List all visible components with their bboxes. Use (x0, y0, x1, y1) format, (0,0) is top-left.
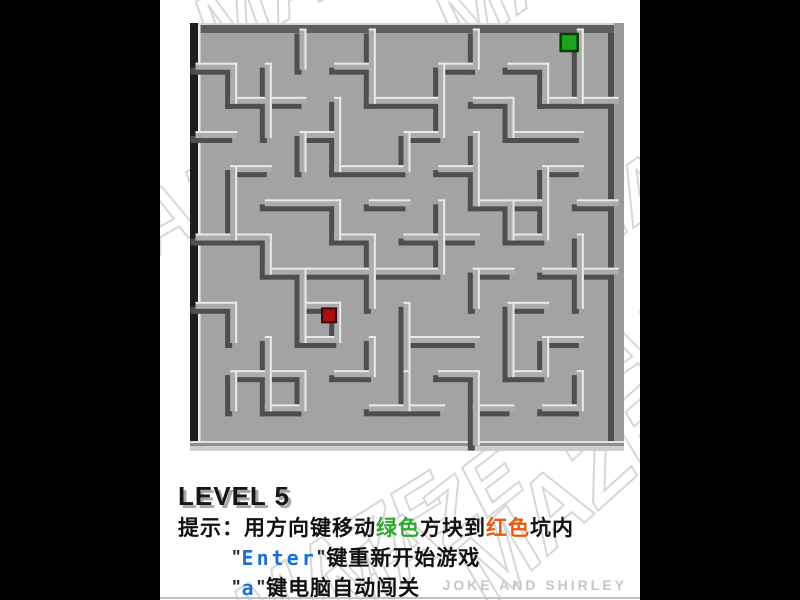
maze-border-top-edge (190, 23, 624, 25)
maze-border-bottom-edge (190, 441, 624, 443)
close-quote: " (317, 547, 327, 567)
hint-red-word: 红色 (486, 517, 530, 540)
game-window: MAZEMAZEMAZEMAZEMAZEMAZEMAZEMAZE LEVEL 5… (0, 0, 800, 600)
maze-border-right-shadow (608, 33, 614, 451)
open-quote: " (232, 547, 242, 567)
enter-key-line: "Enter"键重新开始游戏 (232, 542, 480, 572)
maze-border-top (190, 25, 624, 33)
bottom-divider-line (160, 597, 640, 599)
hint-green-word: 绿色 (376, 517, 420, 540)
red-block (322, 308, 336, 322)
right-black-bar (640, 0, 800, 600)
maze-border-right (614, 23, 624, 451)
enter-key-label: Enter (242, 546, 317, 570)
enter-line-text: 键重新开始游戏 (326, 547, 480, 570)
game-content-area: MAZEMAZEMAZEMAZEMAZEMAZEMAZEMAZE LEVEL 5… (160, 0, 640, 600)
level-label: LEVEL 5 (178, 481, 290, 512)
close-quote: " (257, 577, 267, 597)
hint-prefix: 提示：用方向键移动 (178, 517, 376, 540)
hint-line: 提示：用方向键移动绿色方块到红色坑内 (178, 512, 574, 542)
hint-middle: 方块到 (420, 517, 486, 540)
hint-suffix: 坑内 (530, 517, 574, 540)
auto-key-line: "a"键电脑自动闯关 (232, 572, 420, 600)
maze-board[interactable] (190, 23, 624, 451)
maze-svg (190, 23, 624, 451)
maze-border-bottom-light (190, 446, 624, 451)
left-black-bar (0, 0, 160, 600)
green-block[interactable] (561, 34, 578, 51)
credit-watermark: JOKE AND SHIRLEY (443, 577, 627, 593)
open-quote: " (232, 577, 242, 597)
